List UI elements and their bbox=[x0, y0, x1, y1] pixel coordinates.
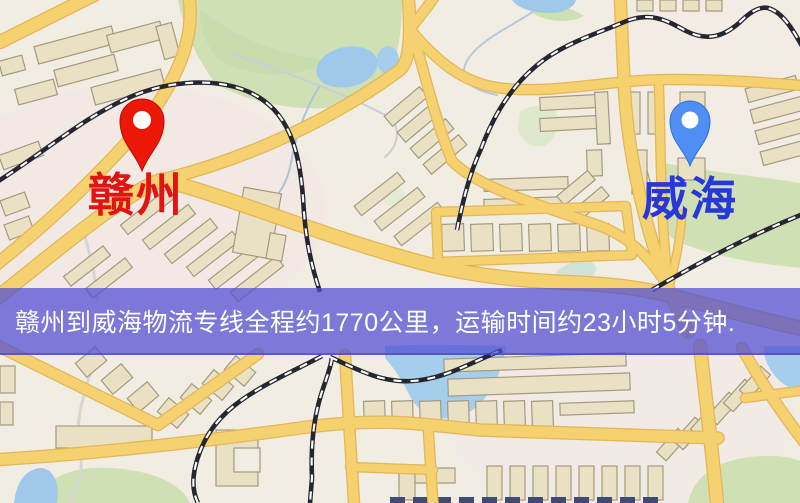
map[interactable]: 赣州 威海 赣州到威海物流专线全程约1770公里，运输时间约23小时5分钟. bbox=[0, 0, 800, 503]
route-info-banner: 赣州到威海物流专线全程约1770公里，运输时间约23小时5分钟. bbox=[0, 288, 800, 355]
destination-city-label: 威海 bbox=[642, 177, 738, 223]
origin-city-label: 赣州 bbox=[88, 173, 184, 219]
map-canvas bbox=[0, 0, 800, 503]
route-info-text: 赣州到威海物流专线全程约1770公里，运输时间约23小时5分钟. bbox=[0, 303, 735, 339]
